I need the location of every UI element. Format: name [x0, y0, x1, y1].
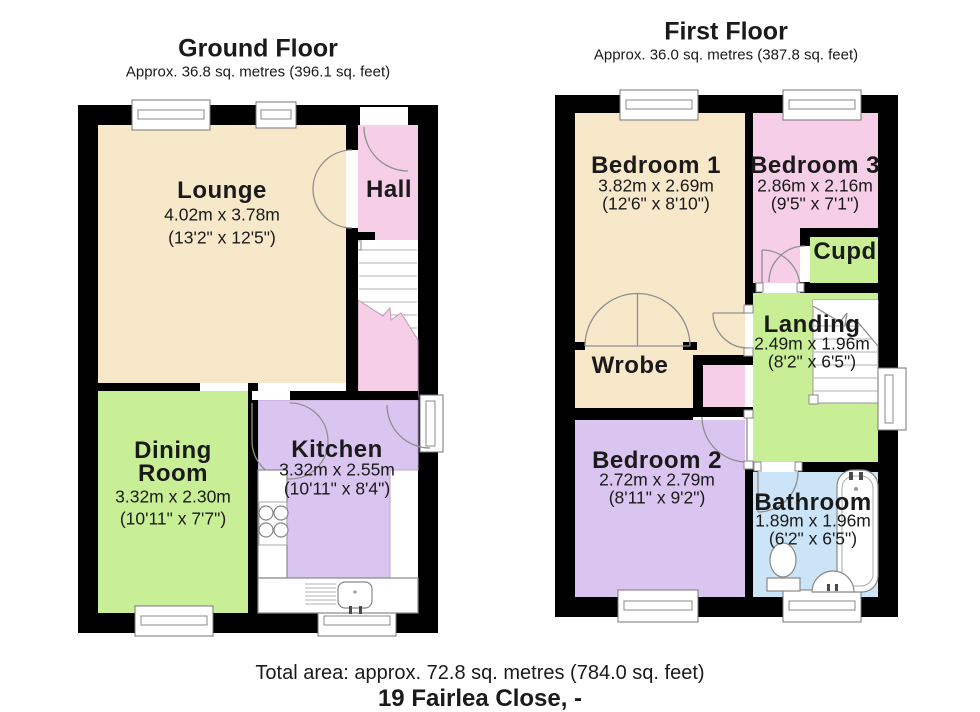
bedroom2-label-metric: 2.72m x 2.79m: [599, 471, 715, 489]
front-door-opening: [360, 107, 408, 125]
bathroom-label-metric: 1.89m x 1.96m: [755, 512, 871, 530]
hall-label-name: Hall: [366, 178, 412, 202]
ff-window-top-1: [620, 90, 698, 120]
lounge-room: [98, 125, 346, 383]
kitchen-door-opening: [252, 391, 290, 400]
landing-closet: [703, 365, 745, 407]
lounge-label-metric: 4.02m x 3.78m: [164, 206, 280, 224]
dining-label-metric: 3.32m x 2.30m: [115, 488, 231, 506]
gf-window-bottom-1: [135, 606, 213, 636]
floorplan-page: Ground Floor Approx. 36.8 sq. metres (39…: [0, 0, 980, 712]
landing-label-imperial: (8'2" x 6'5"): [768, 353, 856, 371]
lounge-label-imperial: (13'2" x 12'5"): [168, 229, 276, 247]
bathroom-label-imperial: (6'2" x 6'5"): [769, 530, 857, 548]
bedroom3-label-metric: 2.86m x 2.16m: [757, 177, 873, 195]
cupd-label-name: Cupd: [813, 240, 876, 264]
gf-window-top-1: [132, 100, 210, 130]
ff-title: First Floor: [664, 20, 788, 45]
ff-window-bottom-2: [783, 590, 861, 622]
kitchen-label-imperial: (10'11" x 8'4"): [284, 480, 390, 498]
ff-window-bottom-1: [618, 590, 698, 622]
gf-back-door-glazing: [420, 395, 443, 452]
dining-label-name-2: Room: [138, 462, 208, 486]
bedroom3-label-imperial: (9'5" x 7'1"): [771, 195, 859, 213]
address-text: 19 Fairlea Close, -: [378, 687, 582, 711]
wrobe-label-name: Wrobe: [592, 354, 669, 378]
ff-window-top-2: [783, 90, 861, 120]
bedroom1-door-opening: [745, 313, 753, 348]
ff-window-landing: [878, 368, 906, 430]
lounge-hall-opening: [346, 150, 358, 228]
gf-window-top-2: [256, 102, 296, 128]
dining-label-imperial: (10'11" x 7'7"): [120, 510, 226, 528]
bedroom1-label-imperial: (12'6" x 8'10"): [602, 195, 710, 213]
bedroom2-label-imperial: (8'11" x 9'2"): [609, 489, 706, 507]
gf-subtitle: Approx. 36.8 sq. metres (396.1 sq. feet): [126, 65, 390, 80]
ff-stair-post: [809, 395, 818, 404]
cupd-door-opening: [800, 246, 810, 282]
bedroom1-label-metric: 3.82m x 2.69m: [598, 177, 714, 195]
lounge-label-name: Lounge: [177, 179, 267, 203]
ff-subtitle: Approx. 36.0 sq. metres (387.8 sq. feet): [594, 48, 858, 63]
gf-title: Ground Floor: [178, 37, 338, 62]
landing-label-metric: 2.49m x 1.96m: [754, 335, 870, 353]
total-area-text: Total area: approx. 72.8 sq. metres (784…: [255, 663, 704, 683]
bathroom-door-opening: [758, 462, 798, 472]
kitchen-label-metric: 3.32m x 2.55m: [279, 461, 395, 479]
